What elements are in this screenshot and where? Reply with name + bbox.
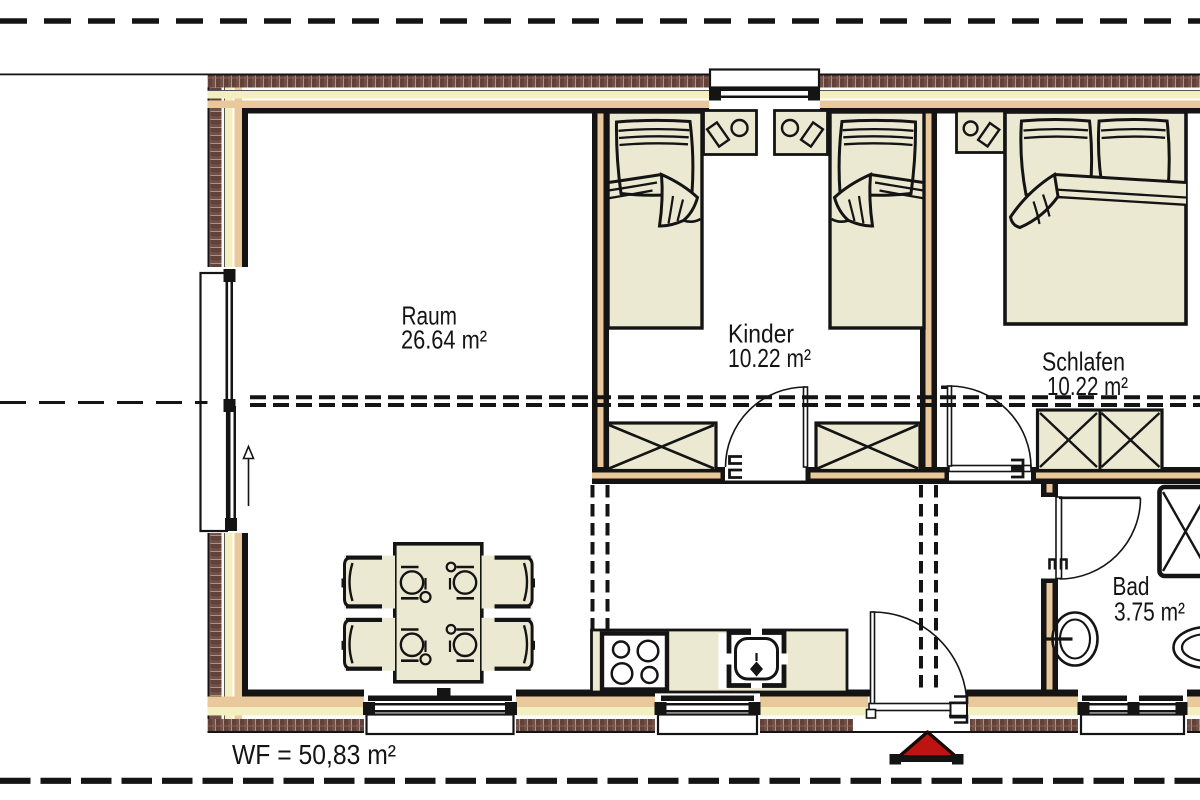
svg-text:26.64 m²: 26.64 m² [401, 325, 487, 355]
svg-text:3.75 m²: 3.75 m² [1114, 597, 1185, 627]
svg-text:WF = 50,83 m²: WF = 50,83 m² [232, 739, 396, 770]
svg-text:10.22 m²: 10.22 m² [728, 343, 811, 373]
svg-text:10.22 m²: 10.22 m² [1047, 371, 1128, 401]
